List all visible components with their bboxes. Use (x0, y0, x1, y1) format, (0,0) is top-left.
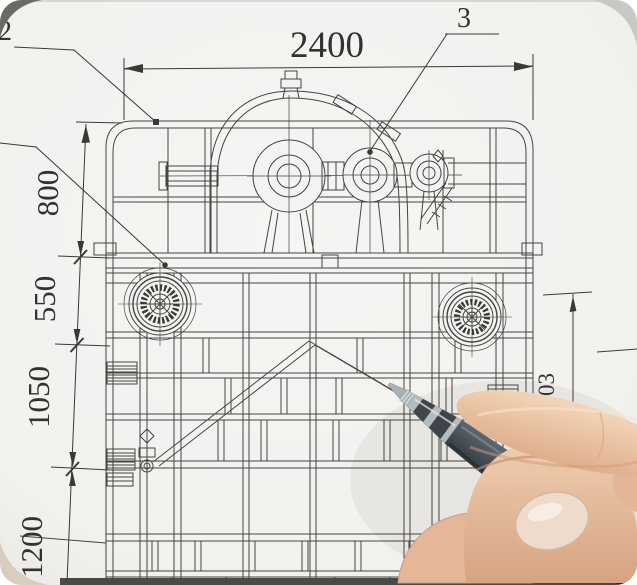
dim-label-550: 550 (27, 276, 62, 323)
dim-label-1050: 1050 (21, 366, 56, 428)
dim-label-2400: 2400 (290, 25, 364, 66)
dim-label-1200: 1200 (14, 516, 49, 578)
drawing-canvas: 2400 800 550 1050 1200 1403 2 3 (0, 0, 637, 585)
photo-of-engineering-drawing: 2400 800 550 1050 1200 1403 2 3 (0, 0, 637, 585)
photo-top-edge (0, 0, 637, 2)
callout-label-3: 3 (457, 3, 471, 34)
dim-label-800: 800 (30, 170, 65, 217)
